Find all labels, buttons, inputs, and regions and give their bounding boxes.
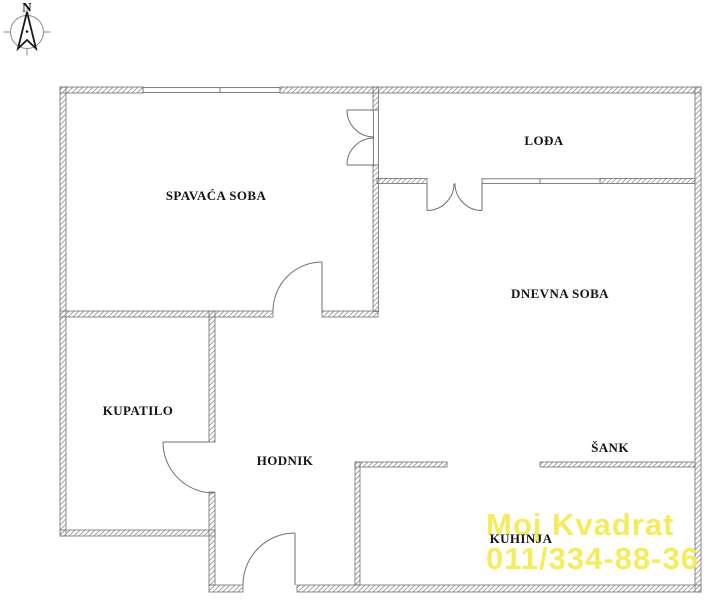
room-label-dnevna-soba: DNEVNA SOBA — [511, 286, 609, 302]
wall-segment — [209, 492, 215, 585]
window — [373, 110, 378, 165]
wall-segment — [600, 179, 695, 184]
balcony-double-door — [427, 184, 482, 211]
wall-segment — [209, 585, 243, 592]
wall-segment — [355, 462, 360, 585]
room-label-kuhinja: KUHINJA — [490, 531, 553, 547]
wall-segment — [209, 311, 215, 442]
compass-icon: N — [4, 0, 51, 56]
room-label-spavaca-soba: SPAVAĆA SOBA — [166, 188, 267, 204]
wall-segment — [280, 87, 701, 93]
wall-segment — [297, 585, 701, 592]
room-label-hodnik: HODNIK — [257, 453, 314, 469]
window — [482, 179, 600, 184]
bedroom-door — [273, 262, 322, 311]
wall-segment — [373, 165, 379, 312]
entrance-door — [243, 533, 295, 585]
wall-segment — [60, 87, 143, 93]
wall-segment — [540, 462, 695, 467]
watermark-line2: 011/334-88-36 — [486, 542, 699, 576]
wall-segment — [373, 87, 379, 110]
room-label-lodja: LOĐA — [524, 133, 563, 149]
wall-segment — [60, 530, 215, 536]
casement-window-symbol — [347, 110, 374, 165]
wall-segment — [355, 462, 447, 467]
window — [143, 88, 280, 93]
wall-segment — [60, 311, 273, 317]
room-label-kupatilo: KUPATILO — [103, 403, 174, 419]
wall-segment — [322, 311, 378, 317]
bathroom-door — [163, 442, 214, 493]
floor-plan: N Moj Kvadrat 011/334-88-36 SPAVAĆA SOBA… — [0, 0, 704, 600]
wall-segment — [377, 179, 427, 184]
compass-north-label: N — [22, 0, 32, 15]
room-label-sank: ŠANK — [591, 440, 629, 456]
